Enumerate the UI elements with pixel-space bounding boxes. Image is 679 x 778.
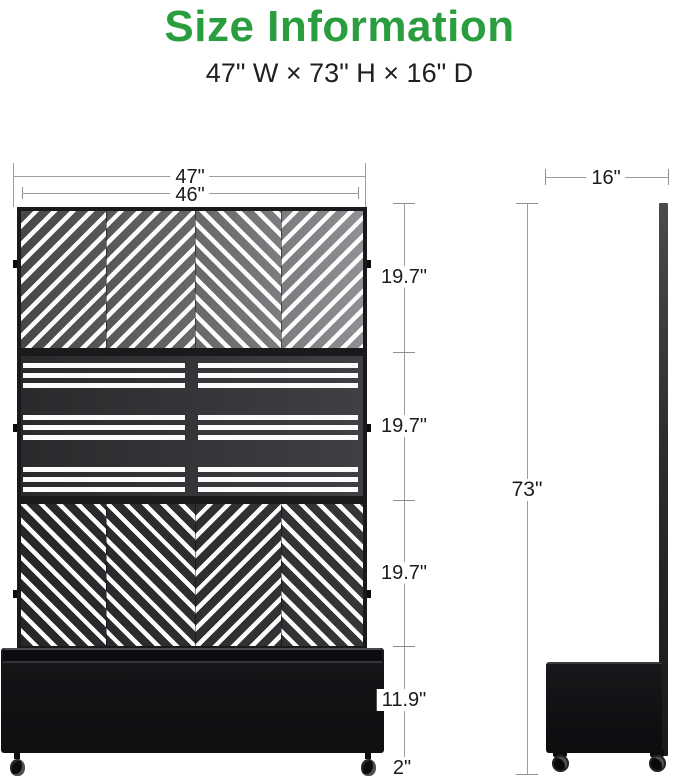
extension-line-right — [365, 163, 366, 207]
front-panel-bottom-chevron — [17, 500, 367, 650]
mount-tab — [367, 260, 371, 268]
planter-height-label: 11.9" — [377, 689, 432, 711]
panel-seam — [195, 504, 196, 646]
chevron-section — [281, 211, 363, 348]
dimensions-subtitle: 47" W × 73" H × 16" D — [0, 58, 679, 89]
mount-tab — [367, 590, 371, 598]
mount-tab — [13, 590, 17, 598]
mount-tab — [13, 260, 17, 268]
panel-seam — [281, 211, 282, 348]
chevron-section — [195, 504, 281, 646]
chevron-section — [195, 211, 281, 348]
front-panel-top-chevron — [17, 207, 367, 352]
depth-label: 16" — [586, 167, 625, 189]
size-information-diagram: Size Information 47" W × 73" H × 16" D 4… — [0, 0, 679, 778]
panel-seam — [106, 211, 107, 348]
caster-wheel-tire — [552, 755, 569, 772]
chevron-section — [21, 504, 106, 646]
chevron-section — [281, 504, 363, 646]
planter-opening — [3, 648, 382, 663]
planter-box-side-profile — [546, 662, 662, 753]
caster-wheel-tire — [649, 755, 666, 772]
slat-column-right — [198, 356, 358, 496]
segment-label-bottom: 19.7" — [376, 562, 432, 584]
caster-stem — [14, 752, 20, 759]
chevron-section — [21, 211, 106, 348]
chevron-section — [106, 211, 195, 348]
extension-line-left — [13, 163, 14, 207]
caster-wheel — [9, 752, 25, 777]
panel-seam — [106, 504, 107, 646]
caster-wheel-tire — [361, 759, 376, 776]
caster-wheel-tire — [10, 759, 25, 776]
width-46-label: 46" — [170, 184, 209, 206]
caster-wheel — [646, 750, 668, 777]
panel-seam — [281, 504, 282, 646]
overall-height-tick-top — [516, 203, 538, 204]
height-tick — [393, 500, 415, 501]
slat-column-left — [23, 356, 185, 496]
overall-height-tick-bottom — [516, 774, 538, 775]
caster-wheel — [549, 750, 571, 777]
mount-tab — [367, 424, 371, 432]
height-tick — [393, 352, 415, 353]
chevron-section — [106, 504, 195, 646]
caster-height-label: 2" — [388, 757, 416, 778]
mount-tab — [13, 424, 17, 432]
height-tick — [393, 646, 415, 647]
planter-box-front — [1, 648, 384, 753]
height-tick — [393, 203, 415, 204]
page-title: Size Information — [0, 2, 679, 52]
panel-seam — [195, 211, 196, 348]
segment-label-top: 19.7" — [376, 266, 432, 288]
caster-wheel — [360, 752, 376, 777]
segment-label-middle: 19.7" — [376, 415, 432, 437]
caster-stem — [365, 752, 371, 759]
front-panel-middle-slats — [17, 352, 367, 500]
overall-height-label: 73" — [507, 479, 548, 501]
